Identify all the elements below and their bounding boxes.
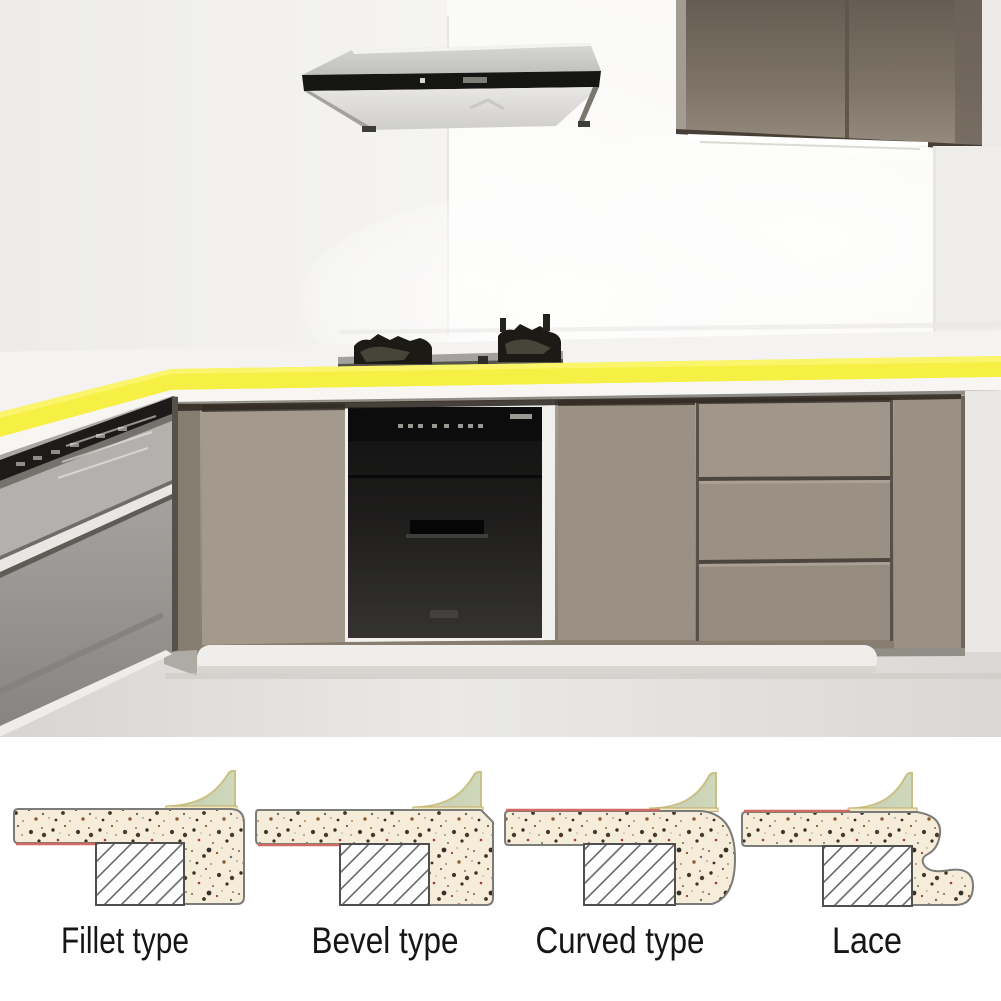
svg-text:Lace: Lace xyxy=(832,920,902,961)
svg-text:Bevel type: Bevel type xyxy=(312,920,459,961)
svg-text:Fillet type: Fillet type xyxy=(61,920,189,961)
svg-text:Curved type: Curved type xyxy=(536,920,705,961)
